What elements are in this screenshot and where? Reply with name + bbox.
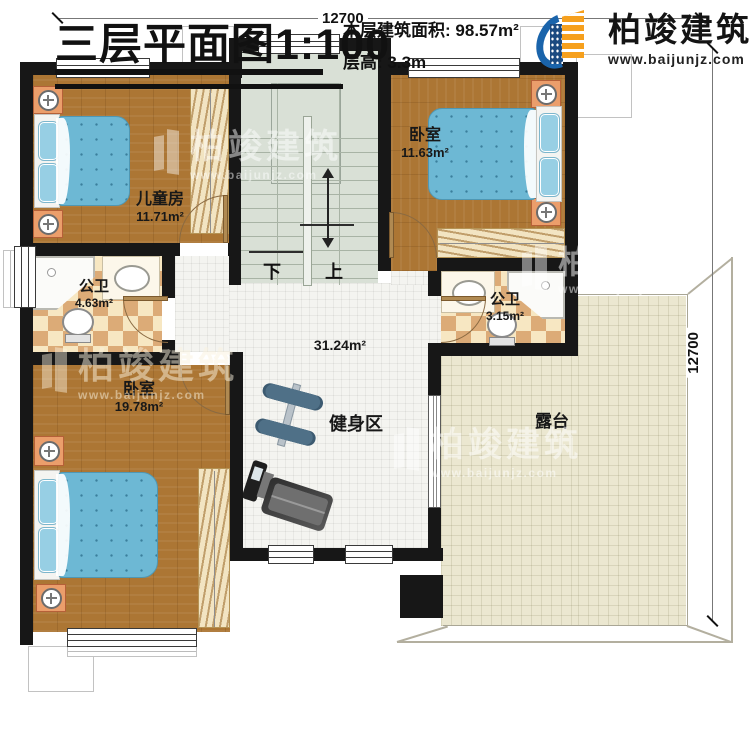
- window: [345, 545, 393, 564]
- floor-height-value: 3.3m: [387, 53, 426, 72]
- room-label-bedroom-tr: 卧室 11.63m²: [378, 126, 472, 161]
- terrace-floor: [441, 356, 578, 626]
- wall-segment: [378, 258, 391, 271]
- wardrobe-rod: [214, 471, 215, 627]
- window: [268, 545, 314, 564]
- dimension-right-value: 12700: [686, 328, 701, 378]
- roof-eave-line: [731, 257, 733, 643]
- stair-handrail: [303, 116, 312, 286]
- stair-flight-line: [277, 83, 278, 285]
- floor-area-value: 98.57m²: [455, 21, 518, 40]
- brand-name: 柏竣建筑: [608, 13, 750, 46]
- wall-segment: [428, 356, 441, 395]
- toilet: [62, 308, 94, 336]
- wall-segment: [428, 271, 441, 296]
- room-label-bath-right: 公卫 3.15m²: [468, 291, 542, 323]
- logo-building-blue: [550, 24, 563, 64]
- room-name: 公卫: [468, 291, 542, 309]
- plan-title-text: 三层平面图: [55, 21, 275, 69]
- dimension-line-right: [712, 48, 713, 622]
- brand-website: www.baijunjz.com: [608, 51, 750, 67]
- room-label-bath-left: 公卫 4.63m²: [58, 278, 130, 310]
- room-area: 31.24m²: [295, 337, 385, 354]
- zone-name: 健身区: [318, 414, 394, 436]
- wall-segment: [162, 256, 175, 298]
- hall-floor: [391, 271, 428, 285]
- parapet-line: [578, 294, 688, 295]
- plan-title: 三层平面图1:100: [55, 10, 390, 72]
- floor-height-label: 层高:: [343, 53, 383, 72]
- stair-arrow-up: [322, 168, 334, 178]
- bed-blanket: [58, 472, 158, 578]
- door-leaf: [389, 212, 394, 258]
- wall-segment: [437, 258, 578, 271]
- terrace-sliding-door: [428, 395, 441, 508]
- column: [400, 575, 443, 618]
- wardrobe-rod: [440, 243, 564, 244]
- brand-name: 柏竣建筑: [558, 244, 702, 280]
- roof-eave-line: [687, 257, 733, 294]
- wall-segment: [20, 352, 180, 365]
- stair-up-label: 上: [318, 258, 350, 284]
- title-underline: [55, 84, 343, 89]
- wall-segment: [20, 243, 180, 256]
- room-area: 19.78m²: [92, 399, 186, 415]
- wall-segment: [228, 243, 241, 256]
- wall-segment: [565, 62, 578, 271]
- room-name: 卧室: [92, 380, 186, 399]
- parapet-line: [443, 625, 688, 626]
- floor-area-label: 本层建筑面积:: [343, 21, 451, 40]
- shower-drain-icon: [541, 281, 550, 290]
- door-leaf: [225, 365, 230, 415]
- title-block: 三层平面图1:100 本层建筑面积: 98.57m² 层高: 3.3m 柏竣建筑…: [0, 0, 750, 93]
- room-area: 11.63m²: [378, 145, 472, 161]
- watermark-text: 柏竣建筑www.baijunjz.com: [558, 246, 702, 296]
- lamp-icon: [536, 202, 557, 223]
- terrace-floor: [578, 296, 686, 626]
- room-name: 卧室: [378, 126, 472, 145]
- stair-down-label: 下: [256, 258, 288, 284]
- company-logo: 柏竣建筑 www.baijunjz.com: [538, 4, 750, 76]
- room-label-bedroom-bl: 卧室 19.78m²: [92, 380, 186, 415]
- room-name: 露台: [516, 412, 588, 432]
- room-label-kids: 儿童房 11.71m²: [108, 190, 212, 225]
- wall-segment: [428, 508, 441, 550]
- hall-corridor-floor: [175, 256, 229, 352]
- room-name: 儿童房: [108, 190, 212, 209]
- nightstand: [36, 584, 66, 612]
- shower-drain-icon: [47, 268, 56, 277]
- nightstand: [33, 210, 63, 238]
- company-logo-icon: [538, 4, 600, 76]
- lamp-icon: [41, 588, 62, 609]
- pillow: [540, 114, 559, 152]
- roof-eave-line: [397, 641, 733, 643]
- lamp-icon: [39, 441, 60, 462]
- nightstand: [34, 436, 64, 466]
- pillow: [540, 158, 559, 196]
- stair-direction-line: [327, 178, 329, 238]
- wall-segment: [230, 548, 443, 561]
- door-leaf: [223, 195, 228, 243]
- window: [67, 628, 197, 647]
- window: [14, 246, 36, 308]
- stair-arrow-down: [322, 238, 334, 248]
- room-area: 4.63m²: [58, 296, 130, 310]
- wall-segment: [565, 271, 578, 356]
- company-logo-text: 柏竣建筑 www.baijunjz.com: [608, 13, 750, 67]
- gym-zone-label: 健身区: [318, 414, 394, 436]
- floor-plan-canvas: 下 上: [0, 0, 750, 729]
- logo-building-orange: [562, 10, 584, 58]
- wardrobe: [198, 468, 230, 628]
- room-name: 公卫: [58, 278, 130, 296]
- floor-height-info: 层高: 3.3m: [343, 48, 426, 73]
- window-sill: [67, 646, 197, 657]
- bed: [34, 470, 160, 580]
- wall-segment: [230, 352, 243, 561]
- stair-flight-line: [339, 83, 340, 285]
- room-area: 11.71m²: [108, 209, 212, 225]
- wardrobe: [437, 228, 565, 258]
- room-area: 3.15m²: [468, 309, 542, 323]
- toilet-tank: [489, 337, 515, 346]
- nightstand: [531, 198, 561, 226]
- hall-area-label: 31.24m²: [295, 337, 385, 354]
- lamp-icon: [38, 214, 59, 235]
- stair-break-line: [249, 251, 303, 253]
- floor-area-info: 本层建筑面积: 98.57m²: [343, 16, 519, 41]
- toilet-tank: [65, 334, 91, 343]
- title-underline: [55, 69, 323, 75]
- terrace-label: 露台: [516, 412, 588, 432]
